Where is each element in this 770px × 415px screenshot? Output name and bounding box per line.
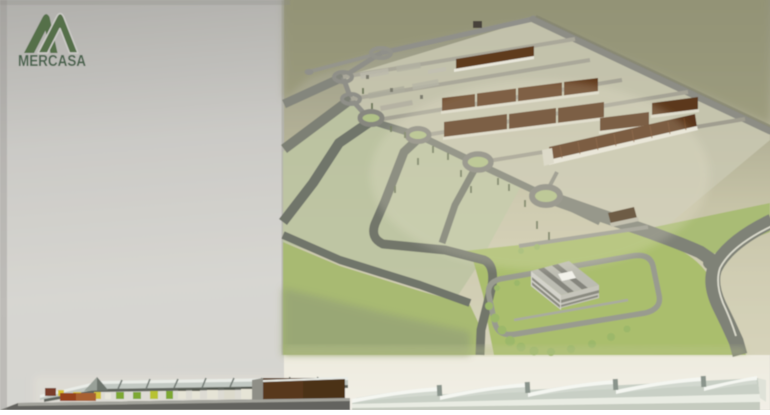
svg-text:MERCASA: MERCASA — [18, 53, 86, 70]
